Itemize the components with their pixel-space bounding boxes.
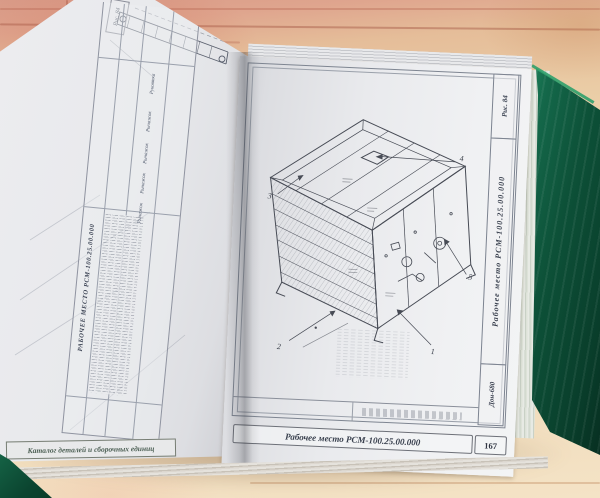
right-page-number: 167 <box>474 435 507 455</box>
callout-number: 1 <box>431 347 435 356</box>
callout-number: 3 <box>267 191 271 200</box>
left-part-name: Рычажок <box>128 194 154 234</box>
right-page-footer-title: Рабочее место РСМ-100.25.00.000 <box>232 424 473 454</box>
right-page: Рис. 84 Рабочее место РСМ-100.25.00.000 … <box>221 56 531 477</box>
right-edition-label: Дон-680 <box>477 363 506 426</box>
left-page-footer-caption: Каталог деталей и сборочных единиц <box>6 439 176 460</box>
isometric-assembly-drawing <box>243 75 492 405</box>
left-part-name: Рукоятка <box>141 64 167 104</box>
callout-number: 2 <box>277 342 281 351</box>
callout-number: 5 <box>468 273 472 282</box>
title-block-divider <box>352 402 354 420</box>
callout-number: 4 <box>459 154 463 163</box>
title-block-microtext <box>362 408 462 421</box>
right-figure-label: Рис. 84 <box>491 74 520 140</box>
photo-open-catalog-book: Рис. 84 РАБОЧЕЕ МЕСТО РСМ-100.25.00.000 … <box>0 0 600 498</box>
